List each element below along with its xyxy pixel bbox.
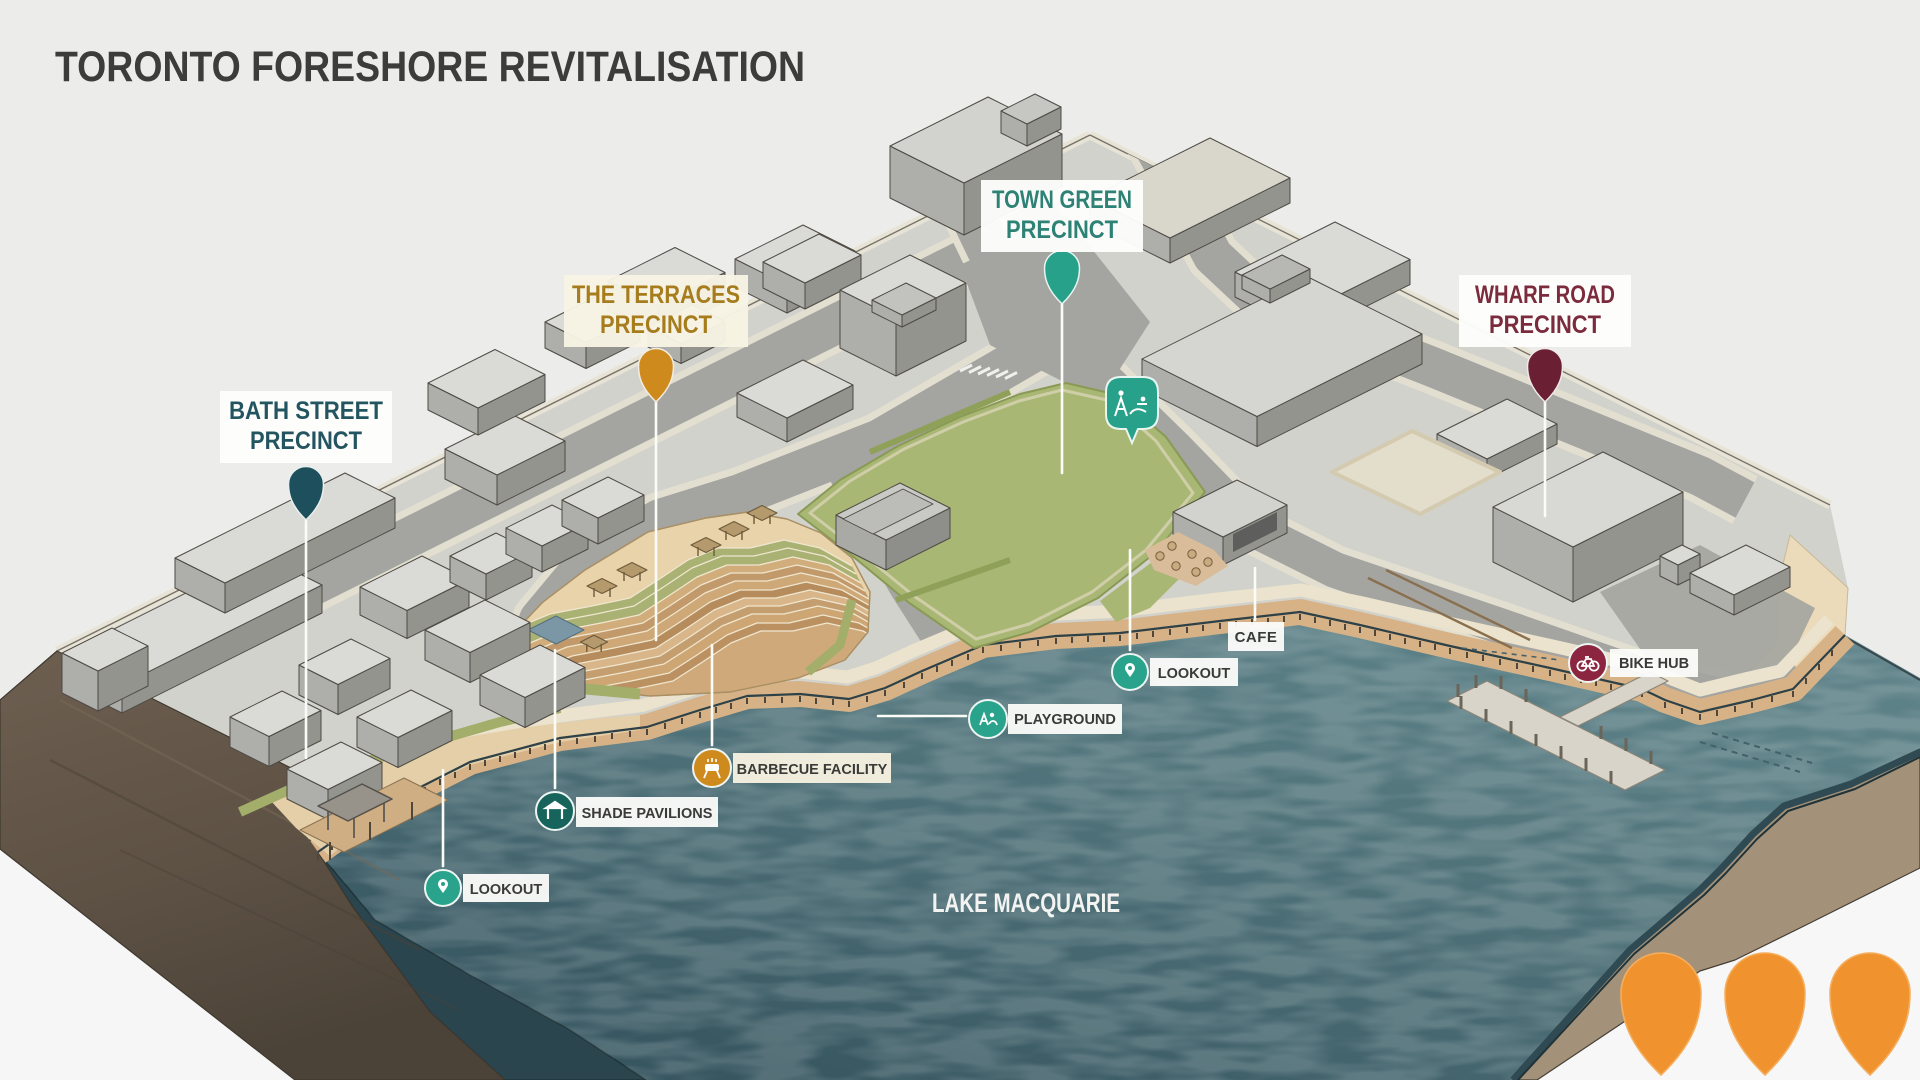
svg-text:BIKE HUB: BIKE HUB [1619,656,1689,672]
svg-text:BATH STREET: BATH STREET [229,397,383,425]
svg-text:LOOKOUT: LOOKOUT [470,882,543,898]
svg-text:PRECINCT: PRECINCT [1489,311,1601,339]
svg-text:TORONTO FORESHORE REVITALISATI: TORONTO FORESHORE REVITALISATION [55,43,805,91]
svg-text:PRECINCT: PRECINCT [250,427,362,455]
svg-text:LAKE MACQUARIE: LAKE MACQUARIE [932,888,1120,918]
svg-text:SHADE PAVILIONS: SHADE PAVILIONS [582,806,713,822]
svg-text:PRECINCT: PRECINCT [1006,216,1118,244]
svg-text:BARBECUE FACILITY: BARBECUE FACILITY [737,762,888,778]
svg-text:PLAYGROUND: PLAYGROUND [1014,712,1116,728]
svg-text:LOOKOUT: LOOKOUT [1158,666,1231,682]
svg-text:TOWN GREEN: TOWN GREEN [992,186,1132,214]
svg-text:PRECINCT: PRECINCT [600,311,712,339]
svg-text:CAFE: CAFE [1235,629,1278,646]
svg-text:WHARF ROAD: WHARF ROAD [1475,281,1615,309]
svg-text:THE TERRACES: THE TERRACES [572,281,740,309]
